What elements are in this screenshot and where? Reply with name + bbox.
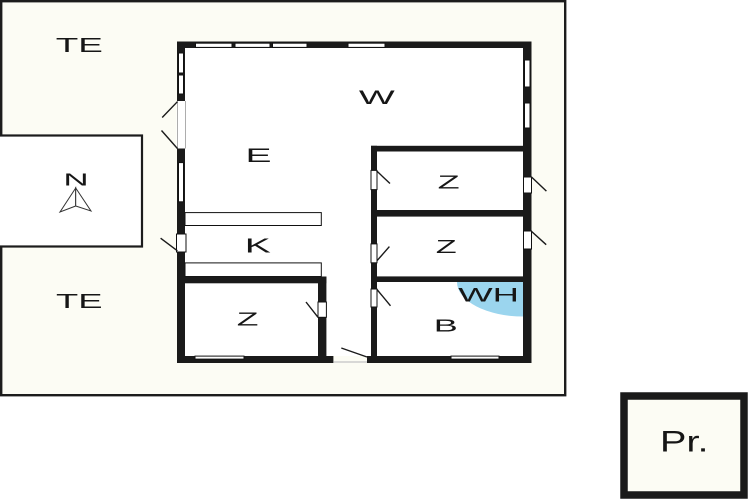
svg-text:N: N [63,170,88,190]
svg-text:Z: Z [438,172,460,193]
svg-text:K: K [245,234,271,257]
svg-text:Pr.: Pr. [660,425,709,458]
svg-text:WH: WH [458,285,519,306]
svg-text:TE: TE [56,34,103,57]
svg-text:Z: Z [436,236,457,257]
svg-text:TE: TE [56,290,103,312]
svg-text:E: E [245,144,271,166]
svg-text:W: W [359,87,395,108]
svg-text:Z: Z [237,309,259,330]
svg-text:B: B [434,315,458,335]
